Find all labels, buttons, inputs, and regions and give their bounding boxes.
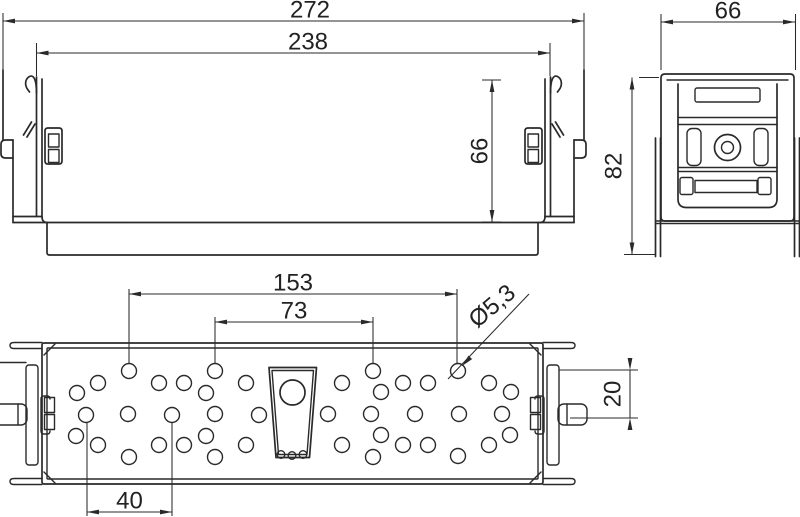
hole bbox=[451, 449, 466, 464]
dim-label-front-height: 66 bbox=[467, 138, 494, 165]
technical-drawing-page: 272 238 66 6 bbox=[0, 0, 800, 517]
hole bbox=[239, 376, 254, 391]
hole bbox=[199, 429, 214, 444]
hole bbox=[408, 407, 423, 422]
dim-label-tab-offset: 20 bbox=[600, 381, 627, 408]
right-hook bbox=[551, 76, 562, 93]
dim-label-hole-span-inner: 73 bbox=[281, 298, 308, 325]
right-side-lug bbox=[574, 140, 586, 158]
left-side-lug bbox=[1, 140, 13, 158]
dim-label-hole-diameter: Ø5,3 bbox=[464, 279, 521, 333]
hole bbox=[208, 407, 223, 422]
hole bbox=[366, 450, 381, 465]
hole bbox=[79, 408, 94, 423]
corner-wing-bl bbox=[10, 479, 42, 485]
center-bracket bbox=[269, 368, 317, 458]
left-hook bbox=[26, 76, 37, 93]
hole bbox=[421, 376, 436, 391]
hole bbox=[482, 438, 497, 453]
dim-label-side-width: 66 bbox=[715, 0, 742, 25]
side-center-hole bbox=[715, 135, 741, 161]
hole bbox=[152, 376, 167, 391]
hole bbox=[121, 407, 136, 422]
center-bracket-hole bbox=[280, 380, 305, 405]
hole bbox=[396, 376, 411, 391]
hole bbox=[239, 438, 254, 453]
hole bbox=[495, 407, 510, 422]
hole bbox=[366, 364, 381, 379]
hole bbox=[91, 376, 106, 391]
dim-label-outer-width: 272 bbox=[290, 0, 330, 24]
hole bbox=[208, 364, 223, 379]
hole bbox=[374, 428, 389, 443]
right-rail bbox=[547, 365, 559, 465]
hole bbox=[177, 376, 192, 391]
corner-wing-tr bbox=[543, 343, 575, 349]
hole bbox=[335, 438, 350, 453]
dim-label-side-height: 82 bbox=[601, 153, 628, 180]
right-latch bbox=[552, 122, 564, 137]
hole bbox=[452, 407, 467, 422]
dim-label-hole-pitch: 40 bbox=[116, 488, 143, 515]
hole bbox=[451, 364, 466, 379]
hole bbox=[421, 438, 436, 453]
hole bbox=[321, 407, 336, 422]
side-bottom-slot bbox=[695, 181, 757, 193]
hole bbox=[122, 364, 137, 379]
front-view-body bbox=[1, 70, 586, 255]
corner-wing-br bbox=[543, 479, 575, 485]
plan-view: 153 73 Ø5,3 20 40 bbox=[0, 270, 638, 517]
plan-outline bbox=[42, 343, 543, 484]
front-view: 272 238 66 bbox=[1, 0, 586, 255]
side-rails bbox=[656, 138, 800, 257]
hole bbox=[199, 386, 214, 401]
hole bbox=[396, 438, 411, 453]
dim-label-cover-width: 238 bbox=[288, 29, 328, 56]
hole bbox=[152, 438, 167, 453]
hole bbox=[70, 386, 85, 401]
corner-wing-tl bbox=[10, 343, 42, 349]
hole bbox=[374, 385, 389, 400]
left-latch bbox=[24, 122, 36, 137]
hole bbox=[503, 428, 518, 443]
hole bbox=[335, 376, 350, 391]
hole bbox=[122, 450, 137, 465]
hole bbox=[252, 408, 267, 423]
drawing-svg: 272 238 66 6 bbox=[0, 0, 800, 517]
hole-pattern bbox=[69, 364, 519, 465]
front-view-dimensions: 272 238 66 bbox=[3, 0, 584, 222]
hole bbox=[177, 438, 192, 453]
side-view: 66 82 bbox=[601, 0, 800, 257]
right-plug bbox=[558, 404, 587, 425]
side-view-dimensions: 66 82 bbox=[601, 0, 796, 255]
hole bbox=[504, 385, 519, 400]
side-view-body bbox=[656, 74, 800, 257]
left-rail bbox=[26, 365, 38, 465]
hole bbox=[69, 429, 84, 444]
hole bbox=[364, 407, 379, 422]
side-top-slot bbox=[695, 88, 760, 102]
hole bbox=[91, 438, 106, 453]
hole bbox=[165, 408, 180, 423]
hole bbox=[208, 450, 223, 465]
dim-label-hole-span-outer: 153 bbox=[273, 270, 313, 297]
left-plug bbox=[0, 404, 27, 425]
hole bbox=[482, 376, 497, 391]
bottom-lid bbox=[47, 223, 538, 256]
plan-view-body bbox=[0, 343, 587, 485]
